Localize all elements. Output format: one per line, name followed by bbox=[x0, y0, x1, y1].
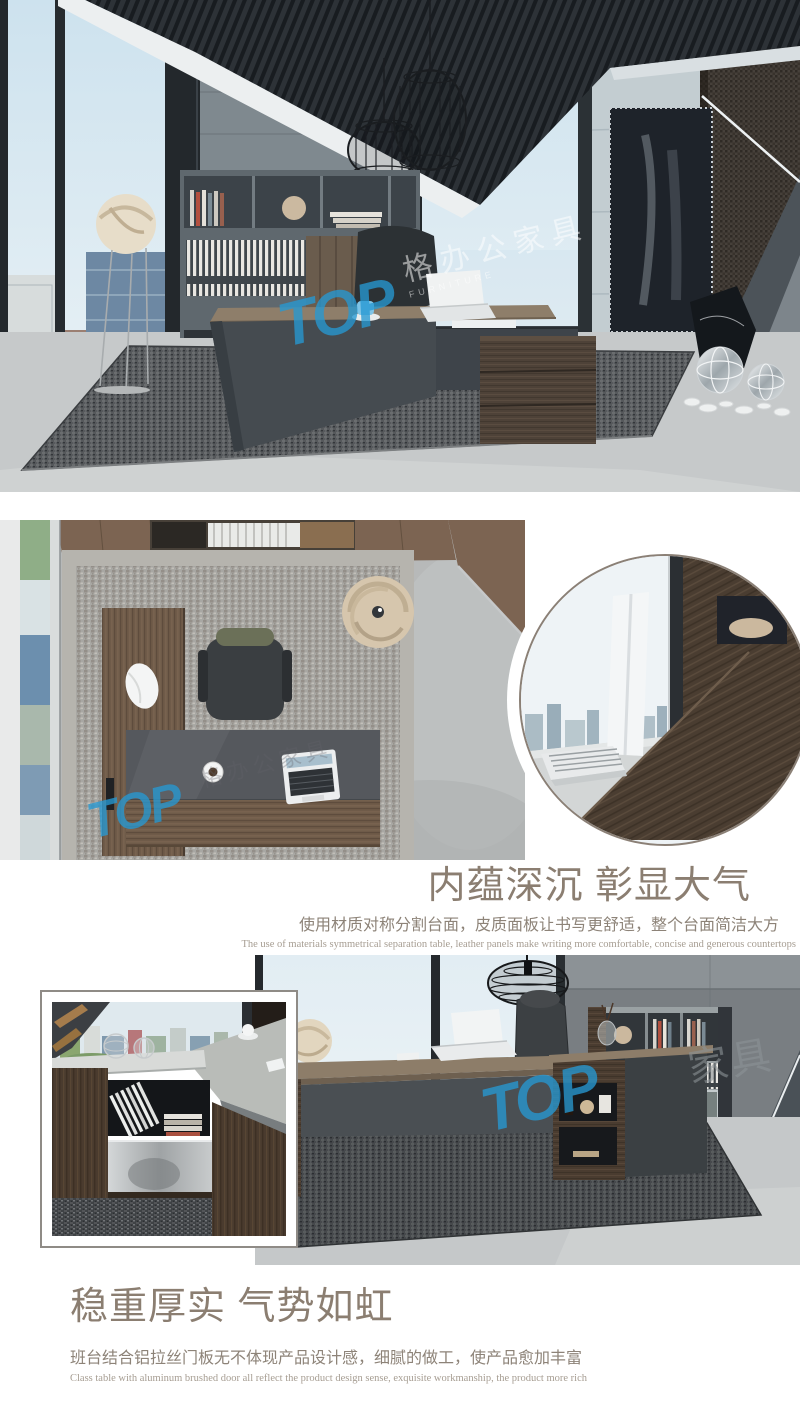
rug-floor bbox=[52, 1198, 212, 1236]
section2-subheading: 班台结合铝拉丝门板无不体现产品设计感，细腻的做工，使产品愈加丰富 bbox=[70, 1349, 730, 1368]
hero-photo: TOP 格办公家具 FURNITURE bbox=[0, 0, 800, 492]
chair-topview bbox=[198, 628, 292, 720]
laptop-topview bbox=[281, 749, 340, 804]
framed-inset-illustration bbox=[52, 1002, 286, 1236]
sideboard-top bbox=[150, 520, 355, 550]
topview-photo: TOP 格办公家具 bbox=[0, 520, 525, 860]
feature-text-section: 稳重厚实 气势如虹 班台结合铝拉丝门板无不体现产品设计感，细腻的做工，使产品愈加… bbox=[70, 1287, 730, 1386]
flower-sculpture bbox=[342, 576, 414, 648]
circle-inset-illustration bbox=[521, 556, 800, 840]
window-band bbox=[0, 520, 60, 860]
section2-subheading-en: Class table with aluminum brushed door a… bbox=[70, 1373, 730, 1386]
framed-detail-inset bbox=[40, 990, 298, 1248]
office-photo-illustration bbox=[255, 955, 800, 1265]
wall-artwork bbox=[610, 108, 712, 332]
circle-detail-inset bbox=[519, 554, 800, 846]
page-root: TOP 格办公家具 FURNITURE bbox=[0, 0, 800, 1401]
section1-subheading-en: The use of materials symmetrical separat… bbox=[203, 939, 797, 952]
magazine-stack bbox=[164, 1114, 202, 1136]
office-detail-photo: TOP 家具 bbox=[255, 955, 800, 1265]
mobile-pedestal bbox=[480, 336, 596, 444]
section1-subheading: 使用材质对称分割台面，皮质面板让书写更舒适，整个台面简洁大方 bbox=[203, 916, 797, 935]
intro-text-section: 内蕴深沉 彰显大气 使用材质对称分割台面，皮质面板让书写更舒适，整个台面简洁大方… bbox=[203, 866, 797, 952]
cabinet-body bbox=[52, 1068, 212, 1198]
section1-heading: 内蕴深沉 彰显大气 bbox=[203, 866, 797, 908]
hero-photo-illustration bbox=[0, 0, 800, 492]
section2-heading: 稳重厚实 气势如虹 bbox=[70, 1287, 730, 1329]
coffee-cup-topview bbox=[203, 762, 223, 782]
topview-photo-illustration bbox=[0, 520, 525, 860]
